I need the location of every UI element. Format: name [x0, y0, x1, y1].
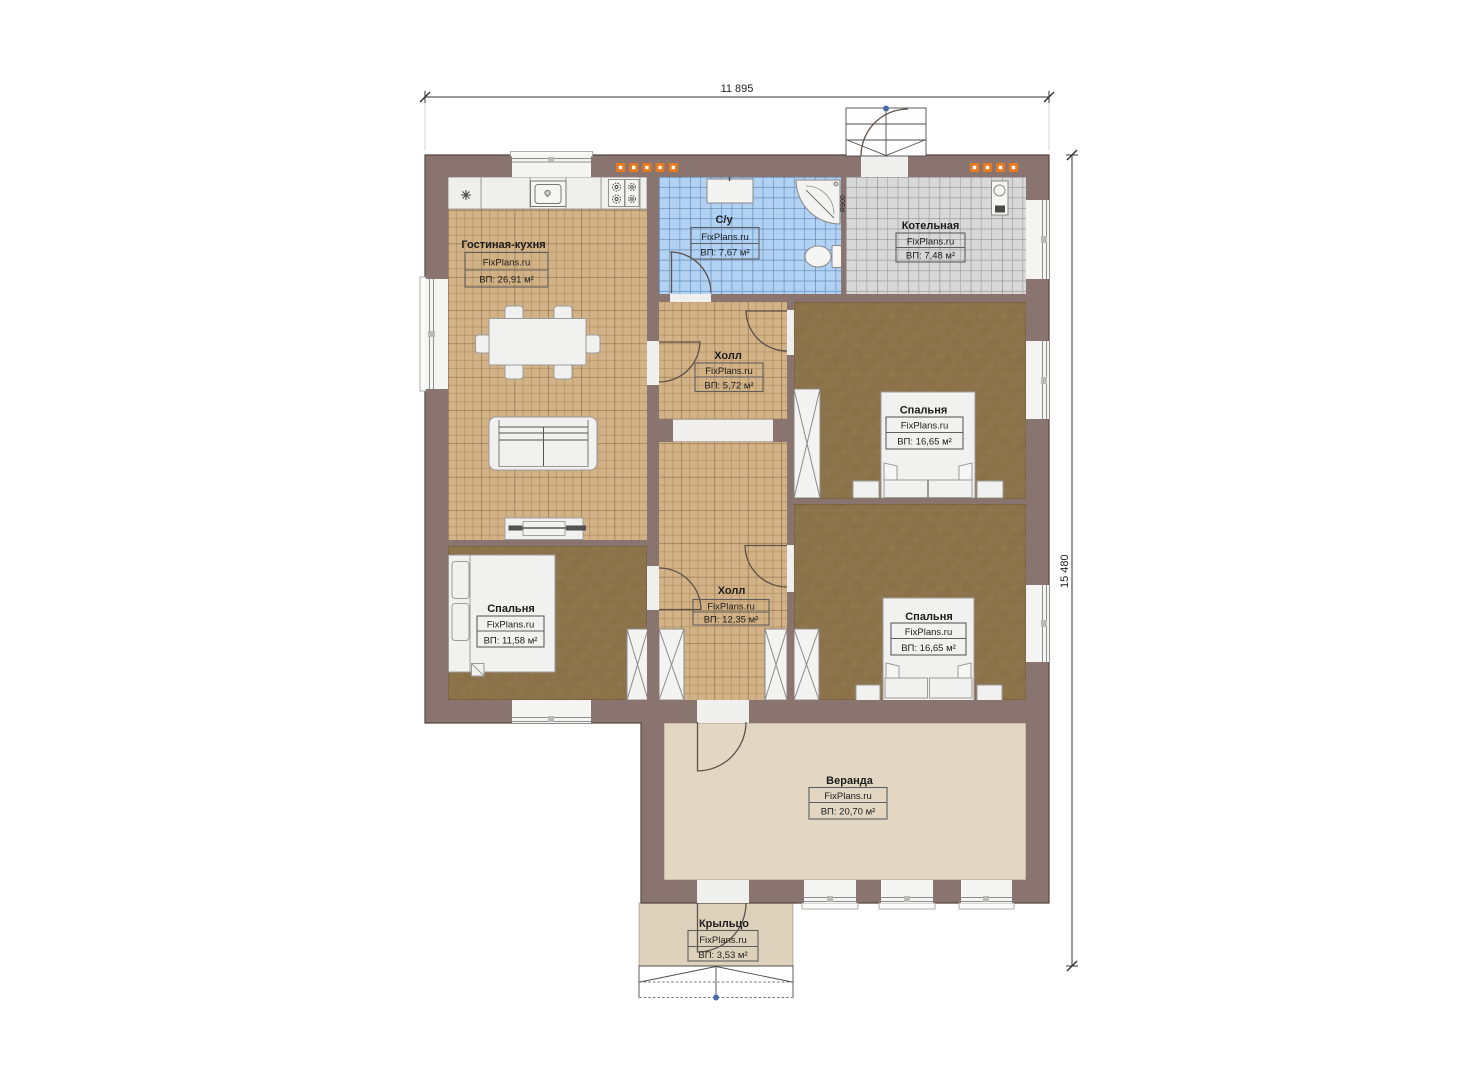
- svg-text:ВП: 3,53 м²: ВП: 3,53 м²: [698, 950, 747, 961]
- svg-text:FixPlans.ru: FixPlans.ru: [907, 237, 955, 248]
- svg-text:С/у: С/у: [715, 214, 733, 226]
- svg-text:Спальня: Спальня: [900, 405, 948, 417]
- svg-text:ВП: 7,48 м²: ВП: 7,48 м²: [906, 251, 955, 262]
- svg-text:Котельная: Котельная: [902, 220, 960, 232]
- svg-text:Гостиная-кухня: Гостиная-кухня: [461, 239, 545, 251]
- svg-text:FixPlans.ru: FixPlans.ru: [699, 935, 747, 946]
- svg-text:FixPlans.ru: FixPlans.ru: [483, 258, 531, 269]
- svg-text:ВП: 12,35 м²: ВП: 12,35 м²: [704, 615, 759, 626]
- svg-text:FixPlans.ru: FixPlans.ru: [705, 366, 753, 377]
- svg-text:FixPlans.ru: FixPlans.ru: [487, 620, 535, 631]
- svg-text:Крыльцо: Крыльцо: [699, 918, 749, 930]
- svg-text:FixPlans.ru: FixPlans.ru: [707, 602, 755, 613]
- svg-text:ВП: 26,91 м²: ВП: 26,91 м²: [479, 275, 534, 286]
- svg-text:FixPlans.ru: FixPlans.ru: [701, 232, 749, 243]
- svg-text:11 895: 11 895: [721, 83, 754, 95]
- svg-text:Спальня: Спальня: [905, 611, 953, 623]
- svg-text:ВП: 5,72 м²: ВП: 5,72 м²: [704, 381, 753, 392]
- svg-text:R900: R900: [840, 195, 847, 212]
- svg-text:FixPlans.ru: FixPlans.ru: [905, 627, 953, 638]
- svg-text:ВП: 16,65 м²: ВП: 16,65 м²: [897, 437, 952, 448]
- svg-text:ВП: 11,58 м²: ВП: 11,58 м²: [484, 636, 538, 647]
- svg-text:FixPlans.ru: FixPlans.ru: [824, 791, 872, 802]
- svg-text:ВП: 20,70 м²: ВП: 20,70 м²: [821, 807, 876, 818]
- svg-text:Холл: Холл: [718, 585, 746, 597]
- svg-text:Веранда: Веранда: [826, 775, 874, 787]
- svg-text:15 480: 15 480: [1059, 554, 1071, 588]
- svg-text:ВП: 16,65 м²: ВП: 16,65 м²: [901, 643, 956, 654]
- svg-text:ВП: 7,67 м²: ВП: 7,67 м²: [700, 248, 749, 259]
- svg-text:FixPlans.ru: FixPlans.ru: [901, 421, 949, 432]
- svg-text:Холл: Холл: [714, 350, 742, 362]
- svg-text:Спальня: Спальня: [487, 603, 535, 615]
